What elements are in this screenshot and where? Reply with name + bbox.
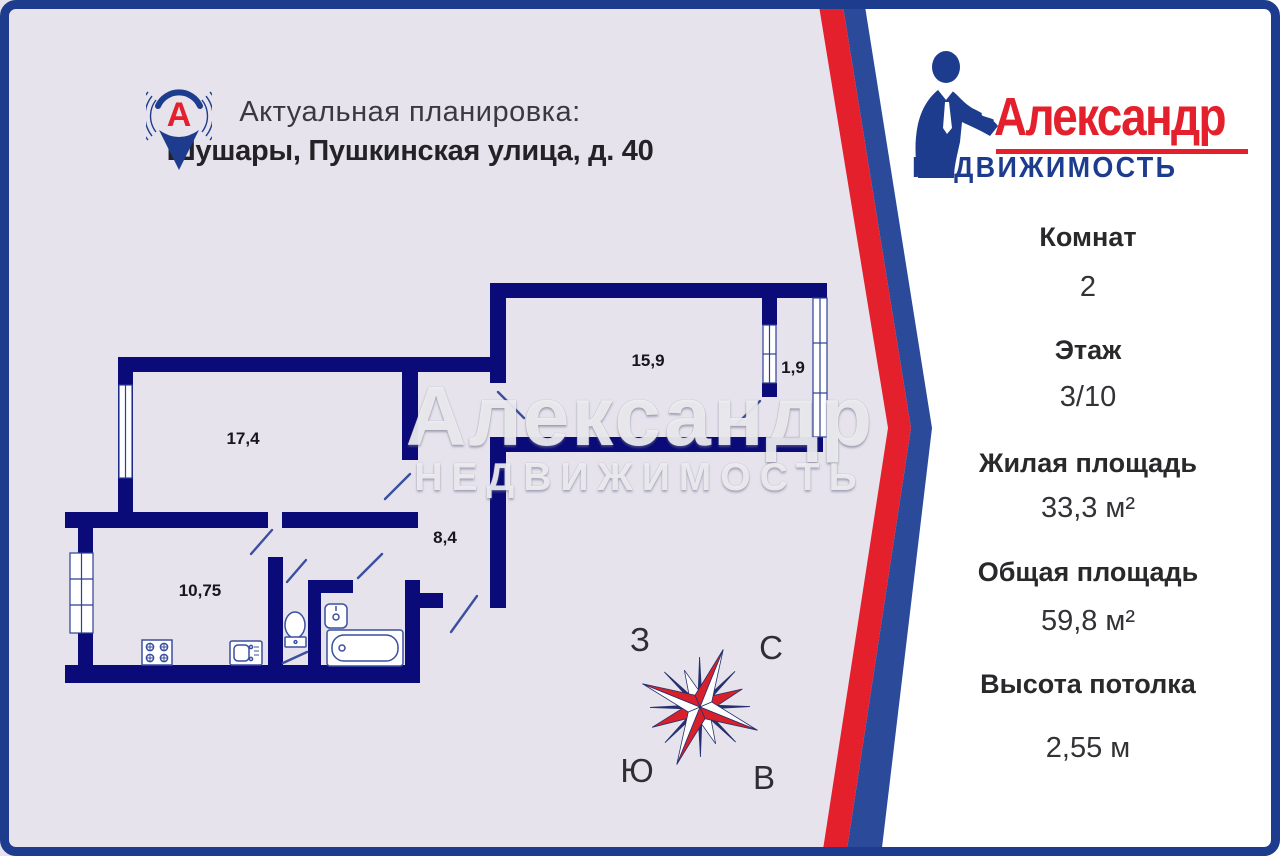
stat-ceiling-label: Высота потолка [908,669,1268,700]
room-label-kitchen: 10,75 [179,581,222,600]
location-pin-icon: А [146,84,212,174]
stat-total-area-value: 59,8 м² [908,605,1268,638]
bathtub-icon [327,630,403,666]
brand-tagline: НЕДВИЖИМОСТЬ [912,152,1177,185]
stat-ceiling-value: 2,55 м [908,732,1268,765]
stat-total-area-label: Общая площадь [908,557,1268,588]
brand-name: Александр [994,86,1225,148]
room-label-hallway: 8,4 [433,528,457,547]
flyer-root: { "header": { "title": "Актуальная плани… [0,0,1280,856]
room-label-living: 17,4 [226,429,260,448]
washbasin-icon [325,604,347,628]
stat-rooms-value: 2 [908,271,1268,304]
compass-label-west: З [630,621,650,659]
room-label-bedroom: 15,9 [631,351,664,370]
compass-rose: З С Ю В [600,605,800,805]
kitchen-sink-icon [230,641,262,665]
stat-living-area-label: Жилая площадь [908,448,1268,479]
svg-text:А: А [167,96,192,134]
brand-logo: Александр НЕДВИЖИМОСТЬ [890,46,1270,186]
stat-living-area-value: 33,3 м² [908,492,1268,525]
toilet-icon [285,612,306,647]
stat-floor-label: Этаж [908,335,1268,366]
compass-label-north: С [759,629,783,667]
stat-rooms-label: Комнат [908,222,1268,253]
compass-label-south: Ю [620,752,653,790]
stove-icon [142,640,172,665]
room-label-balcony: 1,9 [781,358,805,377]
pin-tail [159,130,199,170]
compass-label-east: В [753,759,775,797]
stat-floor-value: 3/10 [908,381,1268,414]
